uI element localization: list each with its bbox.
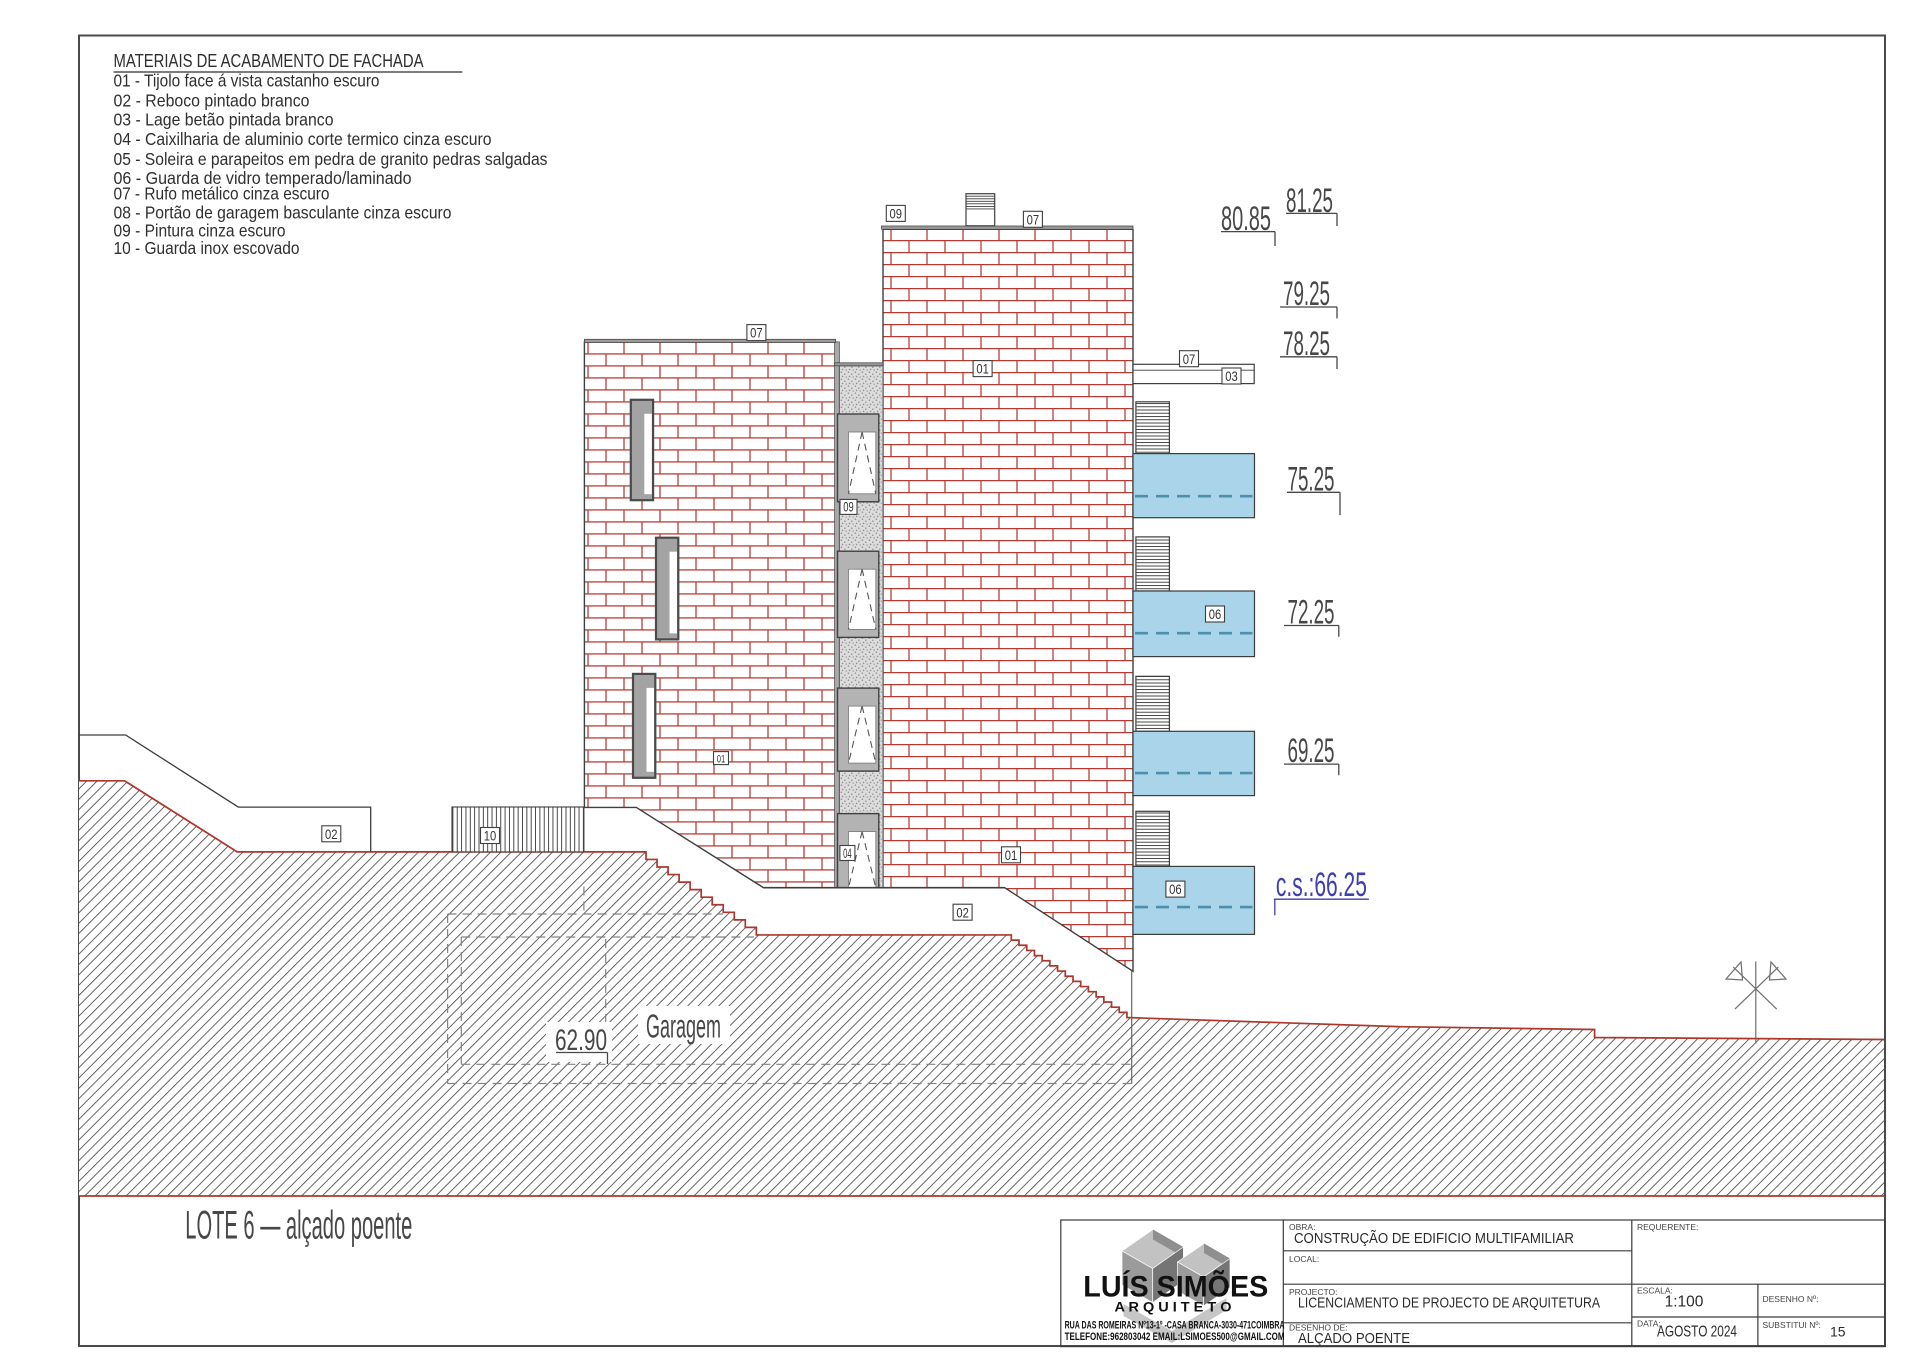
svg-text:02: 02: [956, 904, 969, 920]
svg-text:81.25: 81.25: [1286, 182, 1333, 220]
svg-text:04: 04: [843, 845, 852, 861]
svg-text:ALÇADO POENTE: ALÇADO POENTE: [1298, 1331, 1410, 1347]
svg-text:LUÍS SIMÕES: LUÍS SIMÕES: [1083, 1270, 1268, 1304]
svg-text:09: 09: [890, 206, 903, 222]
svg-text:SUBSTITUI Nº:: SUBSTITUI Nº:: [1763, 1320, 1821, 1330]
svg-text:DESENHO Nº:: DESENHO Nº:: [1763, 1294, 1819, 1304]
svg-text:Garagem: Garagem: [646, 1008, 721, 1045]
svg-text:LICENCIAMENTO DE PROJECTO DE A: LICENCIAMENTO DE PROJECTO DE ARQUITETURA: [1298, 1296, 1600, 1312]
svg-text:LOCAL:: LOCAL:: [1289, 1254, 1319, 1264]
svg-text:01: 01: [1005, 847, 1018, 863]
svg-text:07 - Rufo metálico cinza escur: 07 - Rufo metálico cinza escuro: [114, 184, 330, 204]
svg-text:06: 06: [1169, 881, 1182, 897]
svg-text:04 - Caixilharia de aluminio c: 04 - Caixilharia de aluminio corte termi…: [114, 129, 492, 149]
svg-text:TELEFONE:962803042 EMAIL:LSIMO: TELEFONE:962803042 EMAIL:LSIMOES500@GMAI…: [1065, 1331, 1285, 1343]
svg-text:07: 07: [1183, 351, 1196, 367]
svg-text:02 - Reboco pintado branco: 02 - Reboco pintado branco: [114, 91, 310, 111]
svg-text:LOTE 6 — alçado poente: LOTE 6 — alçado poente: [185, 1204, 412, 1248]
svg-text:09: 09: [843, 499, 854, 515]
svg-text:A R Q U I T E T O: A R Q U I T E T O: [1115, 1300, 1232, 1315]
svg-text:REQUERENTE:: REQUERENTE:: [1637, 1222, 1698, 1232]
svg-text:01: 01: [976, 361, 989, 377]
svg-text:RUA DAS ROMEIRAS Nº13-1º -CASA: RUA DAS ROMEIRAS Nº13-1º -CASA BRANCA-30…: [1065, 1319, 1285, 1331]
svg-text:10 - Guarda inox escovado: 10 - Guarda inox escovado: [114, 238, 300, 258]
svg-text:07: 07: [750, 325, 763, 341]
svg-text:15: 15: [1830, 1324, 1846, 1340]
svg-text:75.25: 75.25: [1288, 461, 1335, 499]
svg-text:01: 01: [717, 753, 726, 765]
svg-text:03 - Lage betão pintada branco: 03 - Lage betão pintada branco: [114, 110, 334, 130]
svg-text:CONSTRUÇÃO DE EDIFICIO MULTIFA: CONSTRUÇÃO DE EDIFICIO MULTIFAMILIAR: [1294, 1230, 1574, 1247]
svg-text:01 - Tijolo face á vista casta: 01 - Tijolo face á vista castanho escuro: [114, 71, 380, 91]
svg-text:05 - Soleira e parapeitos em p: 05 - Soleira e parapeitos em pedra de gr…: [114, 149, 548, 169]
svg-text:80.85: 80.85: [1221, 200, 1271, 238]
svg-text:03: 03: [1225, 368, 1238, 384]
svg-text:1:100: 1:100: [1665, 1293, 1704, 1310]
svg-text:02: 02: [325, 826, 338, 842]
svg-text:07: 07: [1027, 211, 1040, 227]
svg-text:MATERIAIS DE ACABAMENTO DE FAC: MATERIAIS DE ACABAMENTO DE FACHADA: [114, 50, 425, 71]
svg-text:06: 06: [1209, 606, 1222, 622]
svg-text:10: 10: [484, 828, 497, 844]
svg-text:c.s.:66.25: c.s.:66.25: [1276, 866, 1367, 904]
svg-text:AGOSTO 2024: AGOSTO 2024: [1657, 1324, 1737, 1341]
